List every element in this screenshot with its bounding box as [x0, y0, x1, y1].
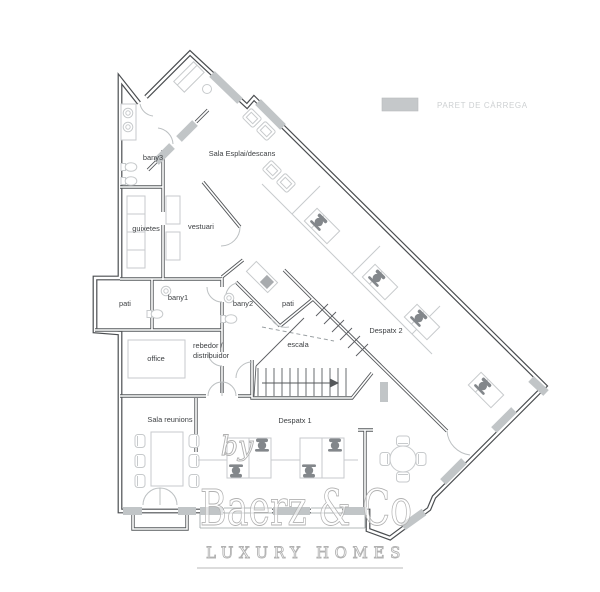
stair-treads [258, 304, 368, 396]
vestuari-bench [166, 232, 180, 260]
esplai-armchair [262, 160, 282, 180]
floor-plan-drawing: PARET DE CÀRREGA [0, 0, 600, 592]
room-label-bany3: bany3 [143, 153, 163, 162]
despatx1-desk-group [300, 438, 344, 478]
esplai-armchair [276, 173, 296, 193]
watermark-brand: Baerz & Co [200, 479, 412, 537]
despatx2-desk [468, 372, 503, 407]
watermark-by: by [221, 431, 254, 462]
meeting-chair [189, 435, 199, 448]
room-label-vestuari: vestuari [188, 222, 214, 231]
meeting-chair [189, 475, 199, 488]
room-label-bany1: bany1 [168, 293, 188, 302]
room-label-sala-esplai: Sala Esplai/descans [209, 149, 276, 158]
despatx2-desk [362, 264, 397, 299]
round-table [380, 436, 426, 482]
meeting-chair [189, 455, 199, 468]
esplai-armchair [256, 121, 276, 141]
bany2-counter [246, 261, 277, 292]
vestuari-bench [166, 196, 180, 224]
room-label-pati-left: pati [119, 299, 131, 308]
room-label-office: office [147, 354, 165, 363]
legend: PARET DE CÀRREGA [382, 98, 528, 111]
room-label-despatx2: Despatx 2 [369, 326, 402, 335]
floor-plan-page: PARET DE CÀRREGA [0, 0, 600, 592]
legend-label: PARET DE CÀRREGA [437, 101, 528, 110]
bany3-sink [123, 108, 133, 118]
despatx2-desk [304, 208, 339, 243]
bany3-sink [123, 122, 133, 132]
bany3-toilet [121, 163, 137, 172]
esplai-side-table [203, 85, 212, 94]
bany1-toilet [147, 310, 163, 319]
room-label-escala: escala [287, 340, 309, 349]
watermark-tagline: LUXURY HOMES [206, 543, 406, 562]
room-label-pati-right: pati [282, 299, 294, 308]
bany2-toilet [221, 315, 237, 324]
meeting-table [151, 432, 183, 486]
meeting-chair [135, 435, 145, 448]
room-label-sala-reunions: Sala reunions [147, 415, 193, 424]
room-label-rebedor-line2: distribuidor [193, 351, 230, 360]
room-label-rebedor-line1: rebedor / [193, 341, 224, 350]
meeting-chair [135, 455, 145, 468]
despatx2-desk [404, 304, 439, 339]
room-label-bany2: bany2 [233, 299, 253, 308]
room-label-guixetes: guixetes [132, 224, 160, 233]
esplai-armchair [242, 108, 262, 128]
bany3-toilet [121, 177, 137, 186]
meeting-chair [135, 475, 145, 488]
room-label-despatx1: Despatx 1 [278, 416, 311, 425]
legend-swatch [382, 98, 418, 111]
